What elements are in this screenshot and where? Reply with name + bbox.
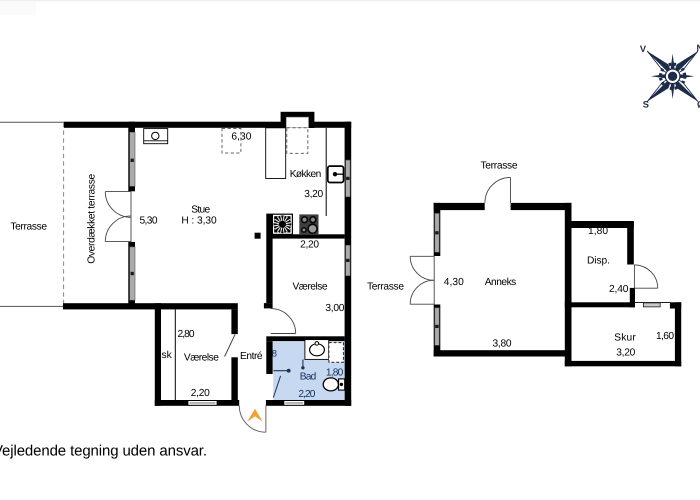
svg-text:Terrasse: Terrasse [10,221,47,232]
svg-text:Bad: Bad [300,371,317,382]
svg-text:3,00: 3,00 [325,303,344,314]
svg-text:Disp.: Disp. [587,256,610,267]
svg-text:Skur: Skur [614,333,636,344]
svg-text:3,20: 3,20 [304,189,323,200]
svg-text:1,60: 1,60 [656,331,674,342]
svg-text:Vejledende tegning uden ansvar: Vejledende tegning uden ansvar. [0,442,207,459]
svg-text:S: S [643,99,649,109]
svg-text:Køkken: Køkken [290,169,322,180]
svg-text:4,30: 4,30 [444,277,464,288]
svg-text:Terrasse: Terrasse [367,282,404,293]
svg-text:2,20: 2,20 [298,389,315,400]
svg-text:Overdækket terrasse: Overdækket terrasse [86,173,97,263]
svg-text:sk: sk [162,350,173,361]
svg-text:2,80: 2,80 [178,329,195,340]
svg-text:2,20: 2,20 [191,388,210,399]
svg-text:Anneks: Anneks [485,277,517,288]
svg-text:Stue: Stue [191,204,210,215]
svg-text:8: 8 [272,348,277,359]
svg-text:2,40: 2,40 [609,284,629,295]
svg-text:Værelse: Værelse [184,352,219,363]
svg-text:H : 3,30: H : 3,30 [181,216,217,227]
svg-text:Terrasse: Terrasse [481,161,518,172]
svg-text:3,80: 3,80 [493,339,512,350]
svg-text:1,80: 1,80 [588,226,608,237]
svg-text:N: N [697,43,700,53]
svg-text:3,20: 3,20 [616,348,635,359]
svg-text:5,30: 5,30 [140,216,158,227]
svg-text:2,20: 2,20 [300,240,319,251]
svg-text:6,30: 6,30 [231,131,251,142]
svg-text:Værelse: Værelse [293,281,328,292]
svg-text:V: V [640,44,647,54]
svg-text:1,80: 1,80 [326,367,344,378]
svg-text:Entré: Entré [240,351,263,362]
